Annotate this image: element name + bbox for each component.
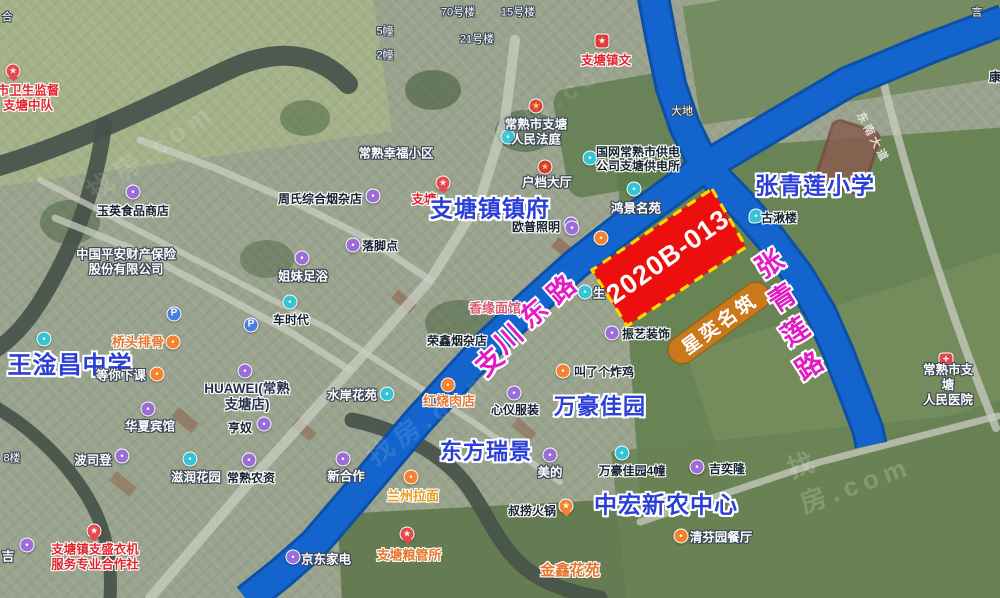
satellite-map[interactable]: 2020B-013 星奕名筑 支川东路张青莲路 ••••••••••••••••… — [0, 0, 1000, 598]
watermark-text: 找房.com — [782, 403, 939, 520]
watermark-text: 找房.com — [488, 37, 631, 153]
watermark-text: 找房.com — [78, 92, 221, 208]
watermark-layer: 找房.com找房.com找房.com找房.com — [0, 0, 1000, 598]
watermark-text: 找房.com — [358, 357, 501, 473]
